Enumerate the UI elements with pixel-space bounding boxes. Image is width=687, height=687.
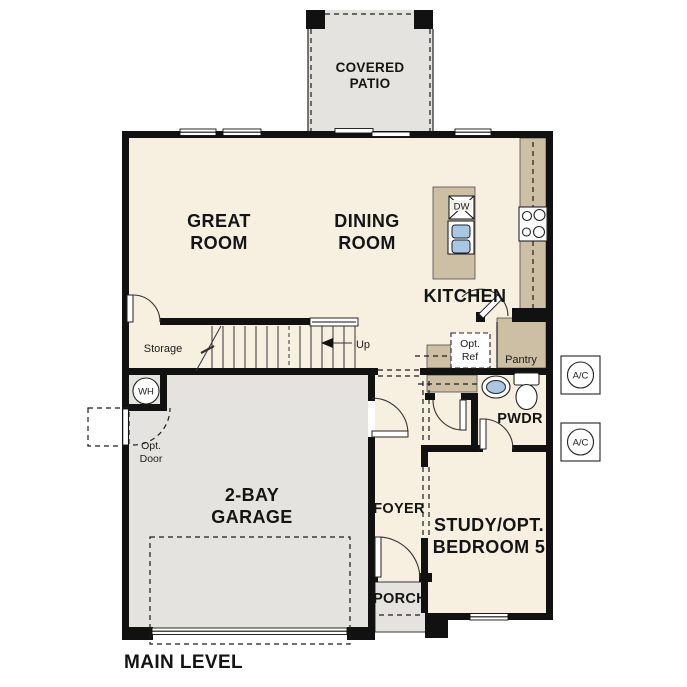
- garage-label: 2-BAY: [225, 485, 279, 505]
- island-sink-bowl: [452, 240, 470, 253]
- storage-label: Storage: [144, 343, 183, 355]
- opt-door-opening: [123, 409, 129, 445]
- great-room-label: GREAT: [187, 211, 251, 231]
- floor-plan-svg: COVERED PATIO GREAT ROOM DINING ROOM KIT…: [0, 0, 687, 687]
- counter-near-ref: [427, 345, 451, 368]
- covered-patio-label: COVERED: [336, 60, 405, 75]
- garage-entry-door-panel: [372, 431, 408, 437]
- foyer-label: FOYER: [373, 501, 425, 517]
- foyer-floor: [375, 375, 425, 582]
- dining-room-label: DINING: [334, 211, 399, 231]
- powder-label: PWDR: [497, 411, 543, 427]
- covered-patio-label: PATIO: [350, 76, 391, 91]
- dw-label: DW: [454, 202, 470, 213]
- opt-door-label: Door: [140, 453, 163, 465]
- patio-post-right: [414, 10, 433, 29]
- wh-label: WH: [138, 387, 154, 398]
- floor-plan-page: COVERED PATIO GREAT ROOM DINING ROOM KIT…: [0, 0, 687, 687]
- study-label: BEDROOM 5: [433, 537, 546, 557]
- opt-ref-label: Ref: [462, 351, 478, 363]
- up-label: Up: [356, 339, 370, 351]
- opt-door-label: Opt.: [141, 440, 161, 452]
- toilet-bowl: [516, 385, 537, 410]
- opt-ref-label: Opt.: [460, 338, 480, 350]
- porch-label: PORCH: [373, 591, 427, 607]
- toilet-tank: [514, 373, 539, 385]
- storage-door-panel: [127, 295, 133, 322]
- closet-door-panel: [460, 400, 466, 430]
- sliding-door-panel: [335, 129, 373, 134]
- powder-door-panel: [480, 419, 486, 449]
- front-door-panel: [375, 537, 381, 577]
- plan-title: MAIN LEVEL: [124, 652, 243, 673]
- ac-top-label: A/C: [573, 371, 589, 382]
- ac-bottom-label: A/C: [573, 438, 589, 449]
- powder-sink-bowl: [487, 381, 506, 394]
- island-sink-bowl: [452, 225, 470, 238]
- dining-room-label: ROOM: [338, 233, 396, 253]
- drop-zone-counter: [427, 375, 477, 392]
- kitchen-label: KITCHEN: [424, 286, 507, 306]
- great-room-label: ROOM: [190, 233, 248, 253]
- patio-post-left: [306, 10, 325, 29]
- porch-floor: [375, 582, 427, 632]
- garage-label: GARAGE: [211, 507, 292, 527]
- pantry-label: Pantry: [505, 354, 537, 366]
- study-label: STUDY/OPT.: [434, 515, 544, 535]
- sliding-door-panel: [372, 132, 410, 137]
